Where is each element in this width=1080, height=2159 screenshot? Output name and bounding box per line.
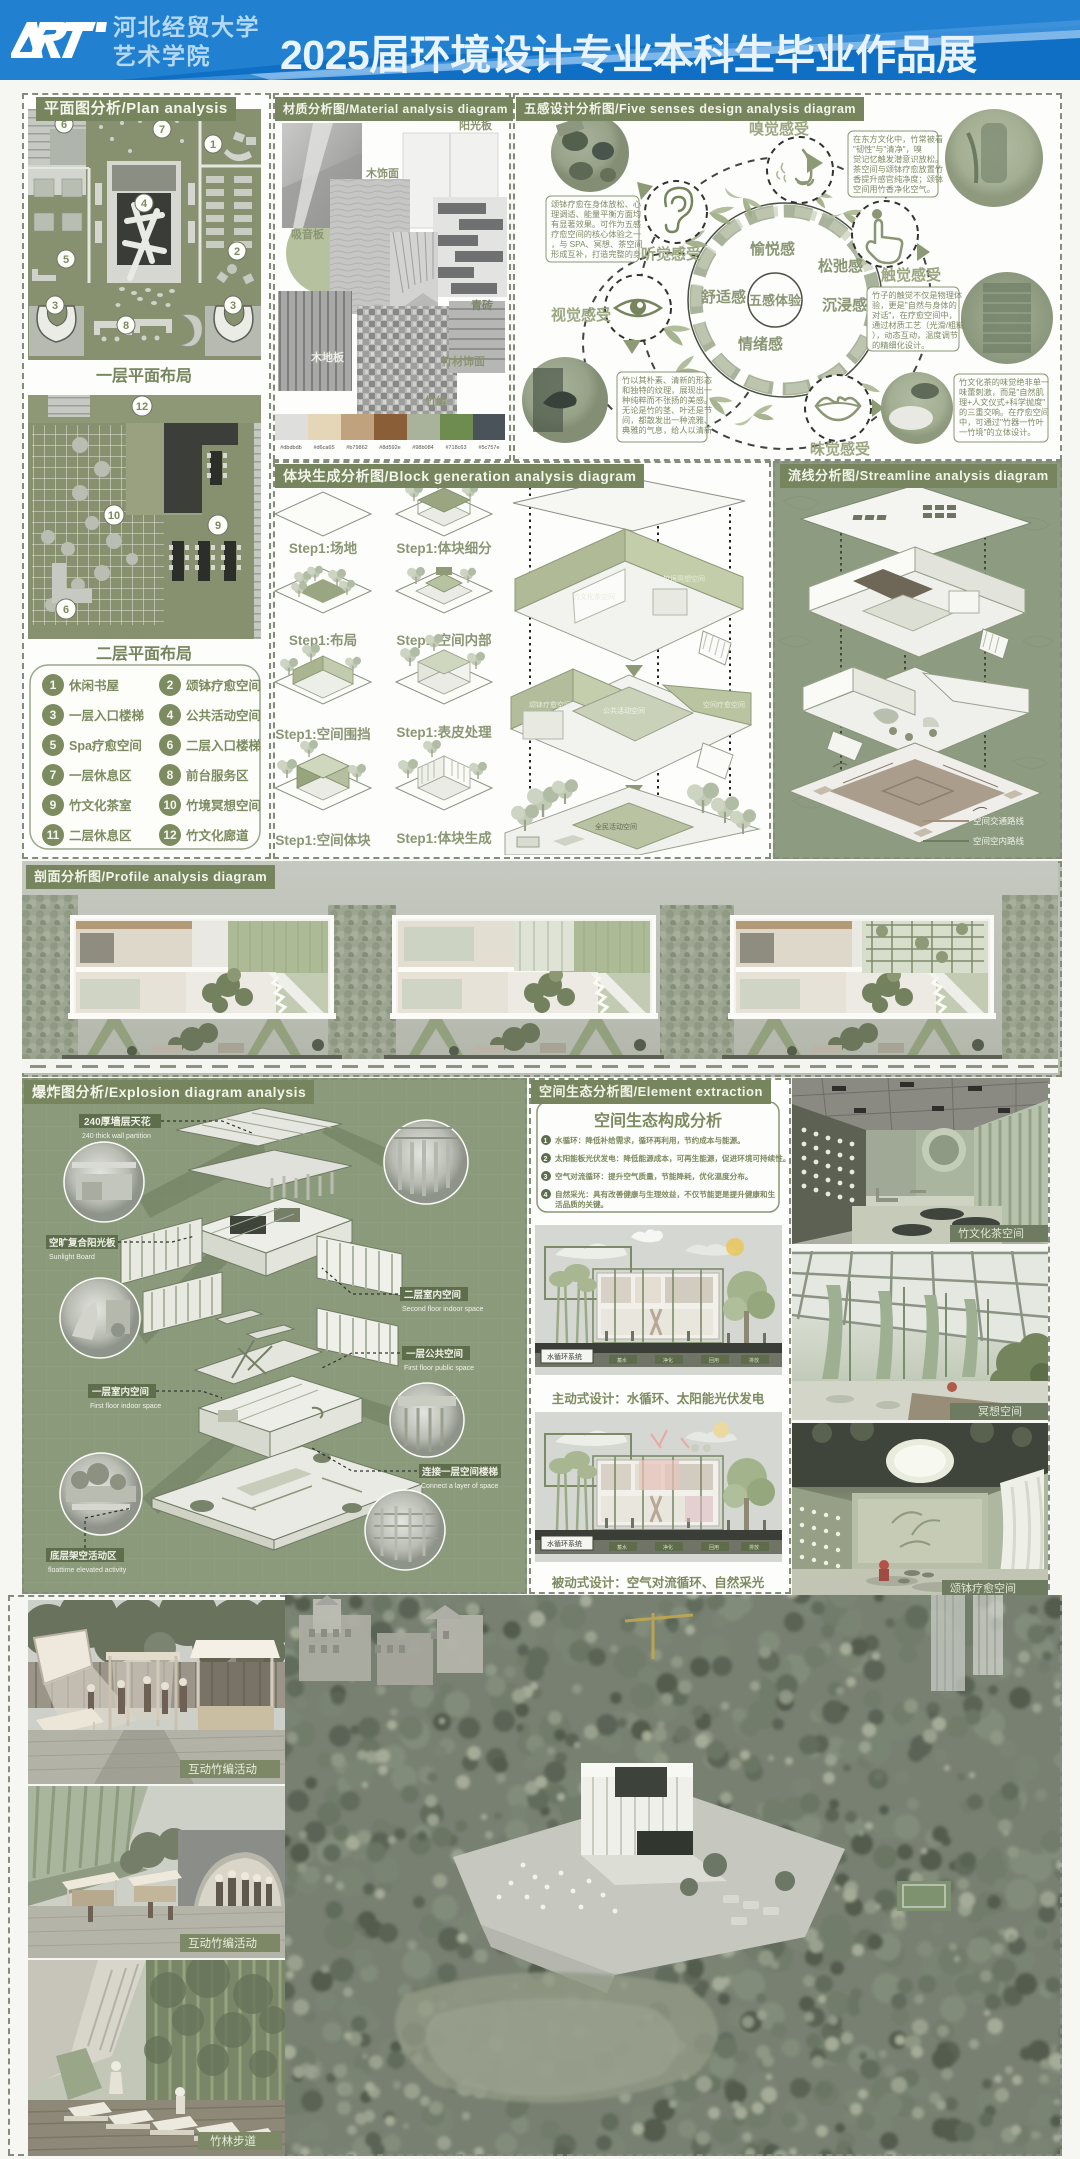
svg-text:一层室内空间: 一层室内空间 xyxy=(92,1386,149,1398)
svg-text:10: 10 xyxy=(163,798,177,812)
svg-text:Step1:布局: Step1:布局 xyxy=(289,632,357,648)
svg-text:），动态互动，温度调节: ），动态互动，温度调节 xyxy=(872,330,958,340)
svg-text:空间疗愈空间: 空间疗愈空间 xyxy=(703,700,745,709)
svg-text:5: 5 xyxy=(50,738,57,752)
svg-text:自然采光：具有改善健康与生理效益，不仅节能更是提升健康和生: 自然采光：具有改善健康与生理效益，不仅节能更是提升健康和生 xyxy=(555,1189,776,1199)
svg-text:#d6ca65: #d6ca65 xyxy=(313,445,334,451)
svg-text:愉悦感: 愉悦感 xyxy=(750,240,795,258)
svg-text:4: 4 xyxy=(167,708,174,722)
svg-text:"韧性"与"清净"，嗅: "韧性"与"清净"，嗅 xyxy=(853,144,922,154)
svg-text:疗愈空间的核心体验之一: 疗愈空间的核心体验之一 xyxy=(551,229,641,239)
svg-text:竹文化茶空间: 竹文化茶空间 xyxy=(958,1226,1024,1240)
svg-text:底层架空活动区: 底层架空活动区 xyxy=(49,1550,117,1562)
svg-text:Step1:空间围挡: Step1:空间围挡 xyxy=(275,726,370,742)
svg-text:11: 11 xyxy=(47,828,60,842)
svg-text:理+人文仪式+科学抛度": 理+人文仪式+科学抛度" xyxy=(959,397,1045,407)
svg-text:Spa疗愈空间: Spa疗愈空间 xyxy=(69,738,142,753)
svg-text:主动式设计：水循环、太阳能光伏发电: 主动式设计：水循环、太阳能光伏发电 xyxy=(552,1391,765,1406)
svg-text:7: 7 xyxy=(159,124,165,136)
svg-text:互动竹编活动: 互动竹编活动 xyxy=(188,1762,257,1776)
svg-text:2: 2 xyxy=(167,678,174,692)
svg-text:被动式设计：空气对流循环、自然采光: 被动式设计：空气对流循环、自然采光 xyxy=(552,1575,765,1590)
svg-text:公共活动空间: 公共活动空间 xyxy=(186,708,261,723)
svg-text:8: 8 xyxy=(167,768,174,782)
svg-text:活品质的关键。: 活品质的关键。 xyxy=(555,1199,608,1209)
svg-text:1: 1 xyxy=(544,1138,548,1145)
svg-text:#718c63: #718c63 xyxy=(445,445,466,451)
svg-text:#5c757e: #5c757e xyxy=(478,445,499,451)
svg-text:Step1:体块细分: Step1:体块细分 xyxy=(396,540,492,556)
svg-text:竹文化廊道: 竹文化廊道 xyxy=(185,828,249,843)
svg-text:竹文化茶的味觉绝非单一: 竹文化茶的味觉绝非单一 xyxy=(959,377,1049,387)
svg-text:Step1:空间内部: Step1:空间内部 xyxy=(396,632,492,648)
svg-text:10: 10 xyxy=(108,510,120,522)
svg-text:互动竹编活动: 互动竹编活动 xyxy=(188,1936,257,1950)
svg-text:验，更是"自然与身体的: 验，更是"自然与身体的 xyxy=(872,300,957,310)
svg-text:种纯粹而不张扬的美感。: 种纯粹而不张扬的美感。 xyxy=(622,395,712,405)
svg-text:太阳能板光伏发电：降低能源成本，可再生能源，促进环境可持续性: 太阳能板光伏发电：降低能源成本，可再生能源，促进环境可持续性。 xyxy=(555,1153,787,1163)
svg-text:竹子的触觉不仅是物理体: 竹子的触觉不仅是物理体 xyxy=(872,290,962,300)
svg-text:竹以其朴素、清新的形态: 竹以其朴素、清新的形态 xyxy=(622,375,712,385)
svg-text:一层休息区: 一层休息区 xyxy=(69,768,132,783)
svg-text:9: 9 xyxy=(215,520,221,532)
svg-text:竹境冥想空间: 竹境冥想空间 xyxy=(185,798,261,813)
svg-text:香提升感官纯净度；颂钵: 香提升感官纯净度；颂钵 xyxy=(853,174,943,184)
svg-text:1: 1 xyxy=(50,678,57,692)
svg-text:1: 1 xyxy=(210,139,216,151)
svg-text:3: 3 xyxy=(230,300,236,312)
svg-text:冥想空间: 冥想空间 xyxy=(978,1404,1022,1418)
svg-text:休闲书屋: 休闲书屋 xyxy=(68,678,120,693)
svg-text:竹林步道: 竹林步道 xyxy=(210,2134,256,2148)
svg-text:味蕾刺激，而是"自然肌: 味蕾刺激，而是"自然肌 xyxy=(959,387,1044,397)
svg-text:4: 4 xyxy=(544,1192,548,1199)
svg-text:形成互补，打造完整的身: 形成互补，打造完整的身 xyxy=(551,249,641,259)
svg-text:#b79862: #b79862 xyxy=(346,445,367,451)
svg-text:2: 2 xyxy=(544,1156,548,1163)
svg-text:吸音板: 吸音板 xyxy=(291,227,325,241)
svg-text:颂钵疗愈在身体放松、心: 颂钵疗愈在身体放松、心 xyxy=(551,199,641,209)
svg-text:二层入口楼梯: 二层入口楼梯 xyxy=(186,738,262,753)
svg-text:水循环：降低补给需求，循环再利用，节约成本与能源。: 水循环：降低补给需求，循环再利用，节约成本与能源。 xyxy=(555,1135,745,1145)
svg-text:和独特的纹理，展现出一: 和独特的纹理，展现出一 xyxy=(622,385,712,395)
svg-text:，与 SPA、冥想、茶空间: ，与 SPA、冥想、茶空间 xyxy=(551,239,643,249)
svg-text:3: 3 xyxy=(52,300,58,312)
svg-text:舒适感: 舒适感 xyxy=(701,288,746,306)
svg-text:#dbdbdb: #dbdbdb xyxy=(280,445,301,451)
svg-text:竹文化茶空间: 竹文化茶空间 xyxy=(573,592,615,601)
svg-text:Second floor indoor space: Second floor indoor space xyxy=(402,1306,483,1313)
svg-text:木饰面: 木饰面 xyxy=(365,166,399,180)
svg-text:竹编: 竹编 xyxy=(424,394,447,408)
svg-text:4: 4 xyxy=(141,198,148,210)
svg-text:5: 5 xyxy=(63,254,69,266)
svg-text:Step1:体块生成: Step1:体块生成 xyxy=(396,830,492,846)
svg-text:全民活动空间: 全民活动空间 xyxy=(595,822,637,831)
svg-text:floattime elevated activity: floattime elevated activity xyxy=(48,1567,127,1574)
svg-text:一竹境"的立体设计。: 一竹境"的立体设计。 xyxy=(959,427,1036,437)
svg-text:视觉感受: 视觉感受 xyxy=(551,306,611,324)
svg-text:颂钵疗愈空间: 颂钵疗愈空间 xyxy=(950,1581,1016,1595)
svg-text:Sunlight Board: Sunlight Board xyxy=(49,1254,95,1261)
svg-text:Step1:表皮处理: Step1:表皮处理 xyxy=(396,724,492,740)
svg-text:240 thick wall partition: 240 thick wall partition xyxy=(82,1133,151,1140)
svg-text:青砖: 青砖 xyxy=(471,298,493,312)
svg-text:竹文化茶室: 竹文化茶室 xyxy=(68,798,132,813)
svg-text:前台服务区: 前台服务区 xyxy=(186,768,249,783)
svg-text:连接一层空间楼梯: 连接一层空间楼梯 xyxy=(422,1466,499,1478)
svg-text:Step1:空间体块: Step1:空间体块 xyxy=(275,832,371,848)
svg-text:空旷复合阳光板: 空旷复合阳光板 xyxy=(49,1237,116,1249)
svg-text:二层平面布局: 二层平面布局 xyxy=(96,644,192,663)
svg-text:First floor public space: First floor public space xyxy=(404,1365,474,1372)
svg-text:一层公共空间: 一层公共空间 xyxy=(406,1348,463,1360)
svg-text:12: 12 xyxy=(136,401,148,413)
svg-text:8: 8 xyxy=(123,320,129,332)
svg-text:#98b084: #98b084 xyxy=(412,445,433,451)
svg-text:通过材质工艺（光滑/粗糙: 通过材质工艺（光滑/粗糙 xyxy=(872,320,964,330)
svg-text:12: 12 xyxy=(163,828,177,842)
svg-text:间，都散发出一种流雅、: 间，都散发出一种流雅、 xyxy=(622,415,712,425)
svg-text:First floor indoor space: First floor indoor space xyxy=(90,1403,161,1410)
svg-text:的三重交响。在疗愈空间: 的三重交响。在疗愈空间 xyxy=(959,407,1049,417)
svg-text:6: 6 xyxy=(63,604,69,616)
svg-text:竹境冥想空间: 竹境冥想空间 xyxy=(663,574,705,583)
svg-text:240厚墙层天花: 240厚墙层天花 xyxy=(84,1115,151,1128)
svg-text:二层休息区: 二层休息区 xyxy=(69,828,132,843)
svg-text:木地板: 木地板 xyxy=(310,350,345,364)
svg-text:颂钵疗愈空间: 颂钵疗愈空间 xyxy=(529,700,571,709)
svg-text:沉浸感: 沉浸感 xyxy=(822,296,867,314)
svg-text:中，可通过"竹器一竹叶: 中，可通过"竹器一竹叶 xyxy=(959,417,1044,427)
svg-text:松弛感: 松弛感 xyxy=(818,257,863,275)
svg-text:的精细化设计。: 的精细化设计。 xyxy=(872,340,929,350)
svg-text:二层室内空间: 二层室内空间 xyxy=(404,1289,461,1301)
svg-text:在东方文化中，竹常被看: 在东方文化中，竹常被看 xyxy=(853,134,943,144)
svg-text:9: 9 xyxy=(50,798,57,812)
svg-text:3: 3 xyxy=(544,1174,548,1181)
svg-text:无论是竹的茎、叶还是节: 无论是竹的茎、叶还是节 xyxy=(622,405,712,415)
svg-text:茶空间与颂钵疗愈放置竹: 茶空间与颂钵疗愈放置竹 xyxy=(853,164,943,174)
svg-text:对话"，在疗愈空间中，: 对话"，在疗愈空间中， xyxy=(872,310,957,320)
svg-text:空间生态构成分析: 空间生态构成分析 xyxy=(594,1111,722,1130)
svg-text:听觉感受: 听觉感受 xyxy=(641,245,701,263)
svg-text:五感体验: 五感体验 xyxy=(749,293,802,308)
svg-text:一层入口楼梯: 一层入口楼梯 xyxy=(69,708,145,723)
svg-text:一层平面布局: 一层平面布局 xyxy=(96,366,192,385)
svg-text:Connect a layer of space: Connect a layer of space xyxy=(421,1483,499,1490)
svg-text:空间空内路线: 空间空内路线 xyxy=(973,836,1025,846)
svg-text:竹材饰面: 竹材饰面 xyxy=(440,354,485,368)
svg-text:嗅觉感受: 嗅觉感受 xyxy=(749,120,809,138)
svg-text:情绪感: 情绪感 xyxy=(738,335,783,353)
svg-text:公共活动空间: 公共活动空间 xyxy=(603,706,645,715)
svg-text:6: 6 xyxy=(167,738,174,752)
svg-text:7: 7 xyxy=(50,768,57,782)
svg-text:味觉感受: 味觉感受 xyxy=(810,440,870,457)
svg-text:空气对流循环：提升空气质量，节能降耗，优化温度分布。: 空气对流循环：提升空气质量，节能降耗，优化温度分布。 xyxy=(555,1171,752,1181)
svg-text:3: 3 xyxy=(50,708,57,722)
svg-text:Step1:场地: Step1:场地 xyxy=(289,540,358,556)
svg-text:#8d592e: #8d592e xyxy=(379,445,400,451)
svg-text:2: 2 xyxy=(234,246,240,258)
svg-text:空间交通路线: 空间交通路线 xyxy=(973,816,1025,826)
svg-text:颂钵疗愈空间: 颂钵疗愈空间 xyxy=(186,678,261,693)
svg-text:有显著效果。可作为五感: 有显著效果。可作为五感 xyxy=(551,219,641,229)
svg-text:理调适、能量平衡方面均: 理调适、能量平衡方面均 xyxy=(551,209,641,219)
svg-text:触觉感受: 触觉感受 xyxy=(881,266,941,284)
svg-text:典雅的气息，给人以清新: 典雅的气息，给人以清新 xyxy=(622,425,712,435)
svg-text:空间用竹香净化空气。: 空间用竹香净化空气。 xyxy=(853,184,935,194)
svg-text:觉记忆触发潜意识放松。: 觉记忆触发潜意识放松。 xyxy=(853,154,943,164)
